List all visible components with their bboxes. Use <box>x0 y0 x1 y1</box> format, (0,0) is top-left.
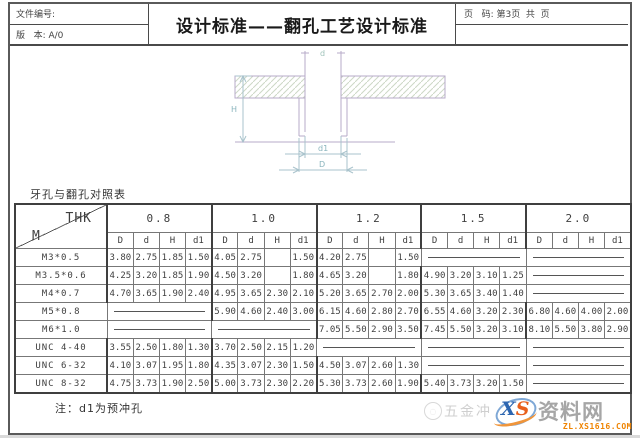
dash-line <box>114 329 206 330</box>
plate-right <box>341 76 445 98</box>
table-cell: 3.00 <box>290 303 316 321</box>
header-right-block: 页 码: 第3页 共 页 <box>455 4 628 44</box>
watermark-badge-icon: ◌ <box>424 402 442 420</box>
not-applicable-cell <box>212 321 317 339</box>
table-cell: 1.80 <box>186 357 212 375</box>
d1-dimension-label: d1 <box>318 144 328 153</box>
table-cell: 4.90 <box>421 267 447 285</box>
table-cell: 2.30 <box>264 357 290 375</box>
table-cell: 3.50 <box>395 321 421 339</box>
table-cell: 2.90 <box>369 321 395 339</box>
table-cell: 1.80 <box>395 267 421 285</box>
table-cell: 2.90 <box>605 321 631 339</box>
table-head: THKM0.81.01.21.52.0DdHd1DdHd1DdHd1DdHd1D… <box>15 204 631 249</box>
table-cell: 3.07 <box>238 357 264 375</box>
table-cell: 3.70 <box>212 339 238 357</box>
header-sub-row: DdHd1DdHd1DdHd1DdHd1DdHd1 <box>15 233 631 249</box>
dash-line <box>428 257 520 258</box>
table-cell: 4.60 <box>343 303 369 321</box>
table-cell: 1.20 <box>290 339 316 357</box>
dim-column-header: D <box>317 233 343 249</box>
document-header: 文件编号: 版 本: A/0 设计标准——翻孔工艺设计标准 页 码: 第3页 共… <box>10 4 628 46</box>
dash-line <box>533 383 624 384</box>
dash-line <box>533 347 624 348</box>
dim-column-header: H <box>159 233 185 249</box>
dim-column-header: d <box>343 233 369 249</box>
dim-column-header: d1 <box>290 233 316 249</box>
not-applicable-cell <box>526 285 631 303</box>
not-applicable-cell <box>526 267 631 285</box>
dim-column-header: H <box>264 233 290 249</box>
table-cell: 6.55 <box>421 303 447 321</box>
table-cell: 2.75 <box>343 249 369 267</box>
table-cell: 4.35 <box>212 357 238 375</box>
outer-dimension-label: D <box>319 160 325 169</box>
table-cell: 5.50 <box>552 321 578 339</box>
table-cell: 4.50 <box>212 267 238 285</box>
table-row: M6*1.07.055.502.903.507.455.503.203.108.… <box>15 321 631 339</box>
table-cell: 7.05 <box>317 321 343 339</box>
row-label: UNC 4-40 <box>15 339 107 357</box>
table-cell: 3.07 <box>343 357 369 375</box>
header-title-block: 设计标准——翻孔工艺设计标准 <box>149 4 455 44</box>
dim-column-header: d1 <box>605 233 631 249</box>
table-cell: 3.10 <box>500 321 526 339</box>
table-cell: 2.40 <box>186 285 212 303</box>
table-cell: 1.50 <box>290 357 316 375</box>
table-row: M3.5*0.64.253.201.851.904.503.201.804.65… <box>15 267 631 285</box>
table-cell: 3.65 <box>238 285 264 303</box>
dim-column-header: d1 <box>186 233 212 249</box>
dash-line <box>533 257 624 258</box>
thickness-group-header: 1.5 <box>421 204 526 233</box>
row-label: M4*0.7 <box>15 285 107 303</box>
table-cell: 2.80 <box>369 303 395 321</box>
corner-thk-label: THK <box>66 211 92 226</box>
watermark-logo: XS <box>493 396 537 426</box>
table-cell: 2.50 <box>238 339 264 357</box>
table-cell: 5.50 <box>447 321 473 339</box>
table-cell: 5.00 <box>212 375 238 394</box>
table-cell: 4.25 <box>107 267 133 285</box>
dim-column-header: H <box>474 233 500 249</box>
table-cell: 3.73 <box>238 375 264 394</box>
table-cell: 3.73 <box>447 375 473 394</box>
table-cell: 3.80 <box>107 249 133 267</box>
dim-column-header: d <box>447 233 473 249</box>
table-cell: 4.70 <box>107 285 133 303</box>
table-cell: 2.70 <box>369 285 395 303</box>
table-cell: 3.55 <box>107 339 133 357</box>
table-cell: 5.30 <box>317 375 343 394</box>
table-cell: 3.07 <box>133 357 159 375</box>
table-cell: 2.30 <box>264 285 290 303</box>
table-cell: 2.10 <box>290 285 316 303</box>
table-cell: 3.20 <box>474 321 500 339</box>
table-cell: 4.95 <box>212 285 238 303</box>
table-cell: 3.73 <box>133 375 159 394</box>
table-cell: 3.20 <box>474 303 500 321</box>
table-cell <box>264 267 290 285</box>
table-cell: 4.10 <box>107 357 133 375</box>
dim-column-header: D <box>107 233 133 249</box>
row-label: M6*1.0 <box>15 321 107 339</box>
table-cell: 3.20 <box>238 267 264 285</box>
flange-walls <box>299 98 347 136</box>
table-cell <box>264 249 290 267</box>
table-cell: 1.95 <box>159 357 185 375</box>
corner-cell: THKM <box>15 204 107 249</box>
table-cell: 1.80 <box>290 267 316 285</box>
hole-dashed-lines <box>305 76 341 98</box>
dim-column-header: D <box>526 233 552 249</box>
table-cell: 3.65 <box>447 285 473 303</box>
table-cell: 2.15 <box>264 339 290 357</box>
table-cell: 2.30 <box>264 375 290 394</box>
table-cell: 2.20 <box>290 375 316 394</box>
table-cell: 2.30 <box>500 303 526 321</box>
table-cell: 3.20 <box>133 267 159 285</box>
table-row: UNC 8-324.753.731.902.505.003.732.302.20… <box>15 375 631 394</box>
table-cell: 2.60 <box>369 357 395 375</box>
row-label: UNC 8-32 <box>15 375 107 394</box>
table-cell: 2.70 <box>395 303 421 321</box>
watermark-logo-text: XS <box>501 398 529 420</box>
thickness-group-header: 1.2 <box>317 204 422 233</box>
table-cell: 4.65 <box>317 267 343 285</box>
table-cell: 3.80 <box>578 321 604 339</box>
dash-line <box>114 311 205 312</box>
row-label: M3.5*0.6 <box>15 267 107 285</box>
dim-column-header: d <box>238 233 264 249</box>
dim-column-header: d1 <box>395 233 421 249</box>
table-cell <box>369 249 395 267</box>
table-cell: 3.20 <box>447 267 473 285</box>
page-number-label: 页 码: 第3页 共 页 <box>456 4 628 25</box>
thickness-group-header: 0.8 <box>107 204 212 233</box>
table-cell: 4.75 <box>107 375 133 394</box>
table-cell: 1.85 <box>159 267 185 285</box>
table-body: M3*0.53.802.751.851.504.052.751.504.202.… <box>15 249 631 394</box>
thickness-group-header: 2.0 <box>526 204 631 233</box>
table-cell: 5.30 <box>421 285 447 303</box>
flange-section-drawing: H d d1 D <box>205 46 465 182</box>
dash-line <box>218 329 309 330</box>
dash-line <box>428 365 520 366</box>
table-cell: 1.50 <box>500 375 526 394</box>
table-cell: 1.25 <box>500 267 526 285</box>
not-applicable-cell <box>526 375 631 394</box>
dash-line <box>428 347 520 348</box>
thickness-group-header: 1.0 <box>212 204 317 233</box>
table-cell: 3.10 <box>474 267 500 285</box>
table-cell: 2.40 <box>264 303 290 321</box>
not-applicable-cell <box>526 357 631 375</box>
table-cell: 4.50 <box>317 357 343 375</box>
table-cell: 2.00 <box>605 303 631 321</box>
table-cell: 3.65 <box>133 285 159 303</box>
watermark: ◌ 五金冲 XS 资料网 ZL.XS1616.COM <box>424 393 636 429</box>
table-cell: 3.40 <box>474 285 500 303</box>
dash-line <box>533 365 624 366</box>
row-label: M3*0.5 <box>15 249 107 267</box>
table-cell: 7.45 <box>421 321 447 339</box>
table-cell: 2.00 <box>395 285 421 303</box>
h-dimension-label: H <box>231 105 237 114</box>
table-row: M5*0.85.904.602.403.006.154.602.802.706.… <box>15 303 631 321</box>
table-cell: 1.30 <box>395 357 421 375</box>
table-cell: 4.05 <box>212 249 238 267</box>
watermark-url: ZL.XS1616.COM <box>563 422 632 431</box>
table-cell: 1.80 <box>159 339 185 357</box>
table-cell: 2.50 <box>186 375 212 394</box>
table-cell: 2.75 <box>133 249 159 267</box>
dim-column-header: H <box>369 233 395 249</box>
table-cell: 1.90 <box>395 375 421 394</box>
table-row: UNC 6-324.103.071.951.804.353.072.301.50… <box>15 357 631 375</box>
corner-m-label: M <box>32 229 42 244</box>
table-cell: 8.10 <box>526 321 552 339</box>
table-cell: 4.60 <box>447 303 473 321</box>
not-applicable-cell <box>107 321 212 339</box>
dash-line <box>533 293 624 294</box>
table-cell: 2.75 <box>238 249 264 267</box>
table-cell: 5.20 <box>317 285 343 303</box>
version-label: 版 本: A/0 <box>10 25 148 45</box>
table-cell: 4.60 <box>238 303 264 321</box>
not-applicable-cell <box>421 339 526 357</box>
not-applicable-cell <box>421 249 526 267</box>
table-title: 牙孔与翻孔对照表 <box>30 186 126 202</box>
table-cell: 1.90 <box>159 285 185 303</box>
footnote: 注：d1为预冲孔 <box>55 400 143 416</box>
dim-column-header: d <box>133 233 159 249</box>
comparison-table: THKM0.81.01.21.52.0DdHd1DdHd1DdHd1DdHd1D… <box>14 203 632 394</box>
table-cell: 1.30 <box>186 339 212 357</box>
not-applicable-cell <box>421 357 526 375</box>
dash-line <box>323 347 415 348</box>
d-dimension-label: d <box>320 49 325 58</box>
doc-number-label: 文件编号: <box>10 4 148 25</box>
not-applicable-cell <box>526 339 631 357</box>
page-title: 设计标准——翻孔工艺设计标准 <box>176 12 428 37</box>
table-cell: 5.40 <box>421 375 447 394</box>
table-cell: 4.60 <box>552 303 578 321</box>
table-cell: 4.20 <box>317 249 343 267</box>
dim-column-header: H <box>578 233 604 249</box>
table-cell: 5.90 <box>212 303 238 321</box>
dim-column-header: d <box>552 233 578 249</box>
not-applicable-cell <box>526 249 631 267</box>
header-group-row: THKM0.81.01.21.52.0 <box>15 204 631 233</box>
table-cell: 3.20 <box>343 267 369 285</box>
dash-line <box>533 275 624 276</box>
table-cell: 1.50 <box>395 249 421 267</box>
table-cell <box>369 267 395 285</box>
dim-column-header: D <box>212 233 238 249</box>
table-cell: 1.50 <box>290 249 316 267</box>
page-number-empty-row <box>456 25 628 45</box>
header-left-block: 文件编号: 版 本: A/0 <box>10 4 149 44</box>
table-cell: 2.60 <box>369 375 395 394</box>
table-cell: 2.50 <box>133 339 159 357</box>
table-cell: 3.73 <box>343 375 369 394</box>
table-cell: 4.00 <box>578 303 604 321</box>
table-cell: 1.90 <box>159 375 185 394</box>
not-applicable-cell <box>317 339 422 357</box>
not-applicable-cell <box>107 303 212 321</box>
table-cell: 1.90 <box>186 267 212 285</box>
table-cell: 1.50 <box>186 249 212 267</box>
watermark-text-left: 五金冲 <box>444 401 492 421</box>
table-row: M4*0.74.703.651.902.404.953.652.302.105.… <box>15 285 631 303</box>
row-label: UNC 6-32 <box>15 357 107 375</box>
table-cell: 1.85 <box>159 249 185 267</box>
dim-column-header: d1 <box>500 233 526 249</box>
table-cell: 3.65 <box>343 285 369 303</box>
table-row: M3*0.53.802.751.851.504.052.751.504.202.… <box>15 249 631 267</box>
table-cell: 1.40 <box>500 285 526 303</box>
table-cell: 6.80 <box>526 303 552 321</box>
table-cell: 6.15 <box>317 303 343 321</box>
plate-left <box>235 76 305 98</box>
table-row: UNC 4-403.552.501.801.303.702.502.151.20 <box>15 339 631 357</box>
table-cell: 5.50 <box>343 321 369 339</box>
table-cell: 3.20 <box>474 375 500 394</box>
dim-column-header: D <box>421 233 447 249</box>
row-label: M5*0.8 <box>15 303 107 321</box>
